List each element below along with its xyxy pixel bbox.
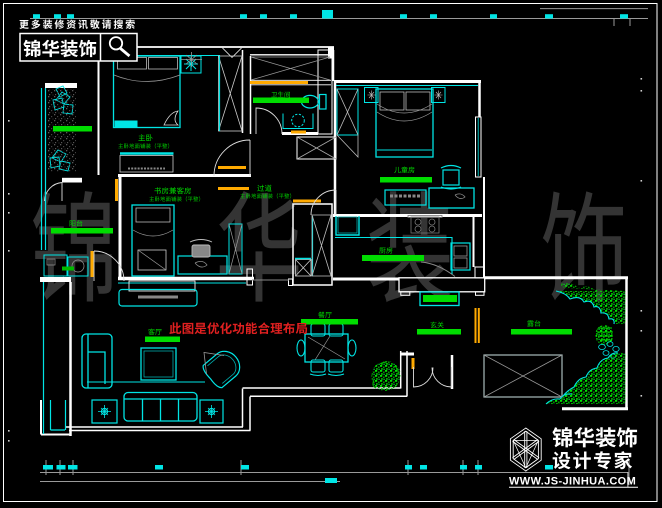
svg-text:WWW.JS-JINHUA.COM: WWW.JS-JINHUA.COM: [509, 476, 636, 488]
